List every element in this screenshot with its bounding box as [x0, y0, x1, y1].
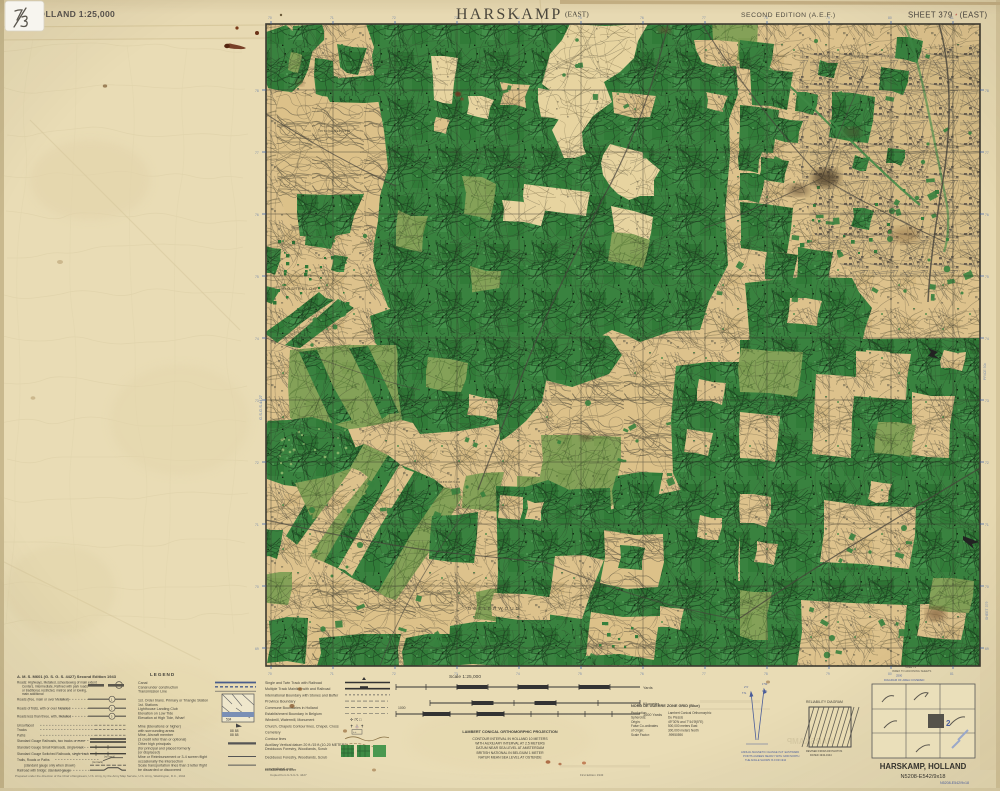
svg-text:LAMBERT CONICAL ORTHOMORPHIC P: LAMBERT CONICAL ORTHOMORPHIC PROJECTION: [462, 730, 558, 734]
svg-text:Province Boundary: Province Boundary: [265, 700, 296, 704]
svg-text:Railroad with bridge: standard: Railroad with bridge: standard gauge: [17, 769, 71, 773]
svg-text:SHEET 379: SHEET 379: [985, 602, 989, 620]
svg-text:Spheroids:: Spheroids:: [631, 715, 646, 719]
svg-text:Scale Factor:: Scale Factor:: [631, 733, 650, 737]
svg-text:✢ ☈ □: ✢ ☈ □: [350, 717, 362, 722]
svg-text:Origin:: Origin:: [631, 720, 641, 724]
svg-text:Production:: Production:: [631, 711, 647, 715]
svg-text:Roads less than three, with, M: Roads less than three, with, Metalled: [17, 715, 71, 719]
svg-text:Church, Chapels Contour lines,: Church, Chapels Contour lines, Chapel, C…: [265, 724, 339, 728]
svg-text:Elevation at High Tide, Wharf: Elevation at High Tide, Wharf: [138, 716, 185, 720]
svg-text:(no track): (no track): [92, 760, 103, 764]
svg-text:SECOND EDITION (A.E.F.): SECOND EDITION (A.E.F.): [741, 12, 836, 19]
svg-text:Canal: Canal: [138, 681, 148, 685]
svg-text:SHEET 2: SHEET 2: [905, 665, 917, 669]
svg-text:Prepared under the direction o: Prepared under the direction of the Chie…: [15, 774, 186, 778]
svg-text:A. M. S. M601 (G. S. G. S. 442: A. M. S. M601 (G. S. G. S. 4427) Second …: [17, 674, 117, 679]
svg-text:N5208-E542/9x18: N5208-E542/9x18: [900, 774, 945, 780]
svg-text:HARSKAMP: HARSKAMP: [456, 6, 563, 23]
svg-text:(no track): (no track): [104, 755, 115, 759]
svg-text:Mine (Elevations or higher): Mine (Elevations or higher): [138, 725, 181, 729]
svg-text:Copied from G.S.G.S. 4427: Copied from G.S.G.S. 4427: [270, 773, 307, 777]
svg-text:2: 2: [946, 719, 951, 728]
svg-text:G.N.: G.N.: [762, 689, 768, 693]
svg-text:DIAGRAM OF AREA COVERED: DIAGRAM OF AREA COVERED: [884, 678, 924, 682]
svg-text:88 88: 88 88: [230, 733, 239, 737]
svg-text:Lambert Conical Orthomorphic: Lambert Conical Orthomorphic: [668, 711, 712, 715]
svg-text:G.S.G.S.4427: G.S.G.S.4427: [258, 394, 263, 420]
svg-text:Trails, Roads or Paths: Trails, Roads or Paths: [17, 758, 50, 762]
svg-text:Cemetery: Cemetery: [265, 731, 281, 735]
svg-text:1000: 1000: [398, 706, 406, 710]
svg-text:Tracks: Tracks: [17, 728, 27, 732]
svg-text:534: 534: [226, 718, 232, 722]
svg-text:Multiple Track Mainline with a: Multiple Track Mainline with and Railroa…: [265, 687, 330, 691]
svg-text:First Edition 1943: First Edition 1943: [580, 773, 604, 777]
svg-text:THE ANGLE SHOWN IS FOR 1944: THE ANGLE SHOWN IS FOR 1944: [745, 758, 787, 762]
svg-text:Mine, Aircraft member: Mine, Aircraft member: [138, 733, 174, 737]
svg-text:BRITISH NATIONAL IN BELGIUM 1: BRITISH NATIONAL IN BELGIUM 1 METER: [476, 751, 544, 755]
svg-text:Deciduous Forestry, Woodlands,: Deciduous Forestry, Woodlands, Scrub: [265, 747, 327, 751]
svg-text:REVISED FROM AIR PHOTOS: REVISED FROM AIR PHOTOS: [806, 749, 843, 753]
svg-text:Windmill, Watermill, Monument: Windmill, Watermill, Monument: [265, 718, 314, 722]
svg-text:Roads of firsts, with or over: Roads of firsts, with or over Metalled: [17, 707, 70, 711]
svg-text:Standard Gauge Railroads, two: Standard Gauge Railroads, two tracks or …: [17, 739, 85, 743]
svg-text:2°2´: 2°2´: [744, 685, 749, 689]
svg-text:Unsurfaced: Unsurfaced: [17, 724, 34, 728]
svg-text:.99950590: .99950590: [668, 733, 683, 737]
svg-text:(EAST): (EAST): [565, 10, 589, 19]
svg-text:NORD DE GUERRE ZONE GRID (Blue: NORD DE GUERRE ZONE GRID (Blue): [631, 704, 701, 708]
svg-text:be discarded or discovered: be discarded or discovered: [138, 768, 181, 772]
svg-text:✝ ⛪ ✝: ✝ ⛪ ✝: [350, 723, 364, 728]
svg-text:Single and Twin Track with Rai: Single and Twin Track with Railroad: [265, 681, 322, 685]
svg-text:Contour lines: Contour lines: [265, 737, 286, 741]
svg-text:500,000 meters East: 500,000 meters East: [668, 724, 698, 728]
svg-text:1st. Order trians. Primary or: 1st. Order trians. Primary or Triangle S…: [138, 698, 208, 702]
svg-text:Paths: Paths: [17, 734, 26, 738]
svg-text:Roads (free, main or over Meta: Roads (free, main or over Metalled): [17, 698, 69, 702]
svg-text:LEGEND: LEGEND: [150, 672, 175, 677]
svg-text:HOLLAND 1:25,000: HOLLAND 1:25,000: [32, 9, 115, 19]
svg-text:Establishment Boundary in Belg: Establishment Boundary in Belgium: [265, 712, 322, 716]
svg-text:(or displaced): (or displaced): [138, 751, 160, 755]
svg-text:Transmission Line: Transmission Line: [138, 690, 167, 694]
svg-text:Standard Gauge Small Railroads: Standard Gauge Small Railroads, single t…: [17, 746, 84, 750]
svg-text:POINTS AGREES NEARLY WITH GRID: POINTS AGREES NEARLY WITH GRID NORTH: [743, 754, 799, 758]
svg-text:main additional: main additional: [22, 692, 44, 696]
svg-text:CONTOUR INTERVAL IN HOLLAND 10: CONTOUR INTERVAL IN HOLLAND 10 METERS: [472, 737, 548, 741]
svg-text:ANNUAL MAGNETIC CHANGE IS 8´ E: ANNUAL MAGNETIC CHANGE IS 8´ EASTWARD: [741, 750, 799, 754]
svg-text:(standard gauge only when show: (standard gauge only when shown): [24, 764, 75, 768]
svg-text:++: ++: [353, 730, 357, 734]
svg-text:False Co-ordinates: False Co-ordinates: [631, 724, 658, 728]
svg-text:conventional over: conventional over: [265, 767, 294, 771]
svg-text:International Boundary with St: International Boundary with Stones and B…: [265, 693, 339, 697]
svg-text:Scale 1:25,000: Scale 1:25,000: [449, 674, 481, 680]
svg-text:INDEX TO ADJOINING SHEETS: INDEX TO ADJOINING SHEETS: [892, 669, 932, 673]
svg-text:2500: 2500: [896, 674, 903, 678]
svg-text:Standard Gauge Switched Railro: Standard Gauge Switched Railroads, singl…: [17, 752, 89, 756]
svg-text:DATED 1943-1944: DATED 1943-1944: [810, 753, 832, 757]
svg-text:PRICE 50c: PRICE 50c: [983, 362, 987, 380]
svg-text:T.N.: T.N.: [742, 691, 747, 695]
svg-text:Deciduous Forestry, Woodlands,: Deciduous Forestry, Woodlands, Scrub: [265, 755, 327, 759]
svg-text:DATUM NEAR SEA LEVEL AT AMSTER: DATUM NEAR SEA LEVEL AT AMSTERDAM: [476, 746, 544, 750]
svg-text:SHEET 379 *(EAST): SHEET 379 *(EAST): [908, 11, 988, 20]
svg-text:of Origin:: of Origin:: [631, 729, 644, 733]
svg-text:N5208-E542/9x18: N5208-E542/9x18: [940, 781, 969, 785]
svg-text:HARSKAMP, HOLLAND: HARSKAMP, HOLLAND: [880, 762, 967, 771]
svg-text:49°30'N and 7°44'Ə(5°E): 49°30'N and 7°44'Ə(5°E): [668, 720, 703, 724]
svg-text:occasionally the intersection: occasionally the intersection: [138, 759, 183, 763]
svg-text:RELIABILITY DIAGRAM: RELIABILITY DIAGRAM: [806, 700, 843, 704]
svg-text:NATUR MEAN SEA LEVEL AT OSTEND: NATUR MEAN SEA LEVEL AT OSTENDE: [478, 755, 542, 759]
svg-text:Du Plessis: Du Plessis: [668, 715, 683, 719]
svg-text:Lighthouse Landing Club: Lighthouse Landing Club: [138, 707, 178, 711]
svg-text:Yards: Yards: [643, 686, 653, 690]
svg-text:Other high principals: Other high principals: [138, 742, 171, 746]
svg-text:300,000 meters North: 300,000 meters North: [668, 729, 699, 733]
svg-text:WITH AUXILIARY INTERVAL AT 2.5: WITH AUXILIARY INTERVAL AT 2.5 METERS: [475, 742, 545, 746]
svg-text:HARSKAMP: HARSKAMP: [786, 737, 833, 746]
